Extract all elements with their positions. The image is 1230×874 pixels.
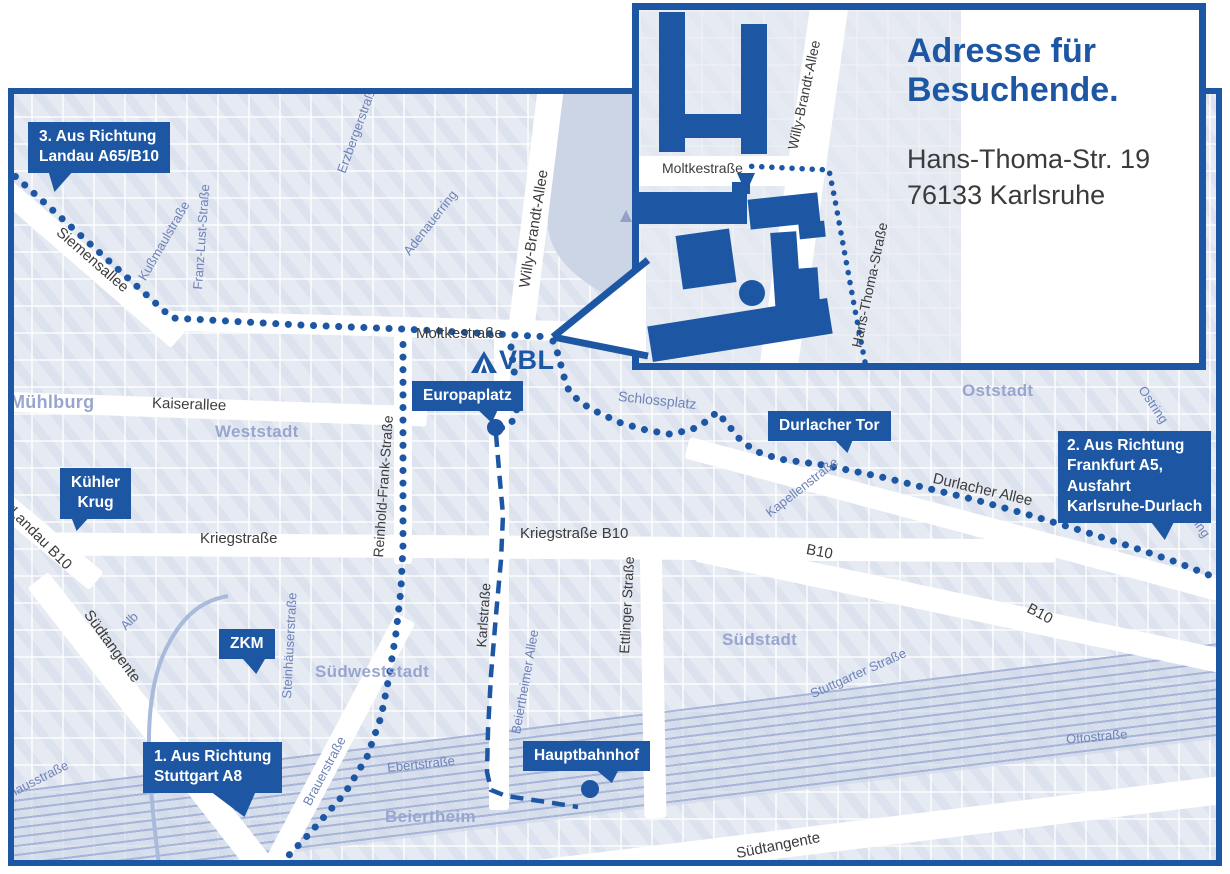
street-label-kriegstrasse: Kriegstraße <box>200 530 278 547</box>
street-band-reinhold-frank <box>394 328 412 564</box>
marker-route1-stuttgart: 1. Aus Richtung Stuttgart A8 <box>143 742 282 793</box>
district-label-suedstadt: Südstadt <box>722 630 797 650</box>
street-band-karlstrasse <box>489 418 509 810</box>
hauptbahnhof-stop-dot <box>581 780 599 798</box>
district-label-beiertheim: Beiertheim <box>385 807 476 827</box>
inset-arrow-icon <box>737 173 755 193</box>
tree-icon <box>620 210 632 222</box>
marker-route2-frankfurt: 2. Aus Richtung Frankfurt A5, Ausfahrt K… <box>1058 431 1211 523</box>
district-label-suedweststadt: Südweststadt <box>315 662 429 682</box>
inset-route-dotted <box>745 166 865 362</box>
inset-title: Adresse für Besuchende. <box>907 32 1119 110</box>
district-label-oststadt: Oststadt <box>962 381 1033 401</box>
marker-hauptbahnhof: Hauptbahnhof <box>523 741 650 771</box>
vbl-logo-triangle-icon <box>469 349 499 375</box>
visitor-address-inset: Moltkestraße Willy-Brandt-Allee Hans-Tho… <box>632 3 1206 370</box>
marker-kuehler-krug: Kühler Krug <box>60 468 131 519</box>
city-map: Siemensallee Moltkestraße Kaiserallee Wi… <box>0 0 1230 874</box>
marker-durlacher-tor: Durlacher Tor <box>768 411 891 441</box>
inset-street-label-moltke: Moltkestraße <box>662 160 743 176</box>
europaplatz-stop-dot <box>487 419 504 436</box>
street-label-kaiserallee: Kaiserallee <box>152 395 227 415</box>
marker-europaplatz: Europaplatz <box>412 381 523 411</box>
inset-address: Hans-Thoma-Str. 19 76133 Karlsruhe <box>907 142 1150 213</box>
street-label-moltkestrasse: Moltkestraße <box>416 325 503 342</box>
district-label-muehlburg: Mühlburg <box>14 392 94 413</box>
vbl-logo-text: VBL <box>499 345 555 376</box>
street-label-kriegstrasse-b10: Kriegstraße B10 <box>520 525 628 542</box>
marker-zkm: ZKM <box>219 629 275 659</box>
marker-route3-landau: 3. Aus Richtung Landau A65/B10 <box>28 122 170 173</box>
district-label-weststadt: Weststadt <box>215 422 299 442</box>
